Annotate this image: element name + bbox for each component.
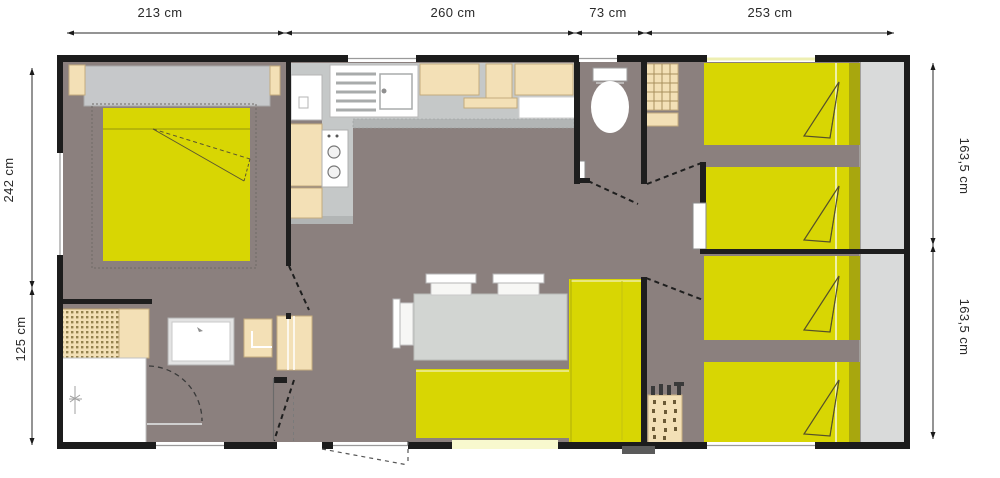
svg-text:213 cm: 213 cm <box>137 5 182 20</box>
svg-text:125 cm: 125 cm <box>13 316 28 361</box>
svg-text:163,5 cm: 163,5 cm <box>957 299 972 356</box>
svg-text:163,5 cm: 163,5 cm <box>957 138 972 195</box>
svg-text:73 cm: 73 cm <box>589 5 626 20</box>
svg-text:242 cm: 242 cm <box>1 157 16 202</box>
svg-text:260 cm: 260 cm <box>430 5 475 20</box>
svg-text:253 cm: 253 cm <box>747 5 792 20</box>
